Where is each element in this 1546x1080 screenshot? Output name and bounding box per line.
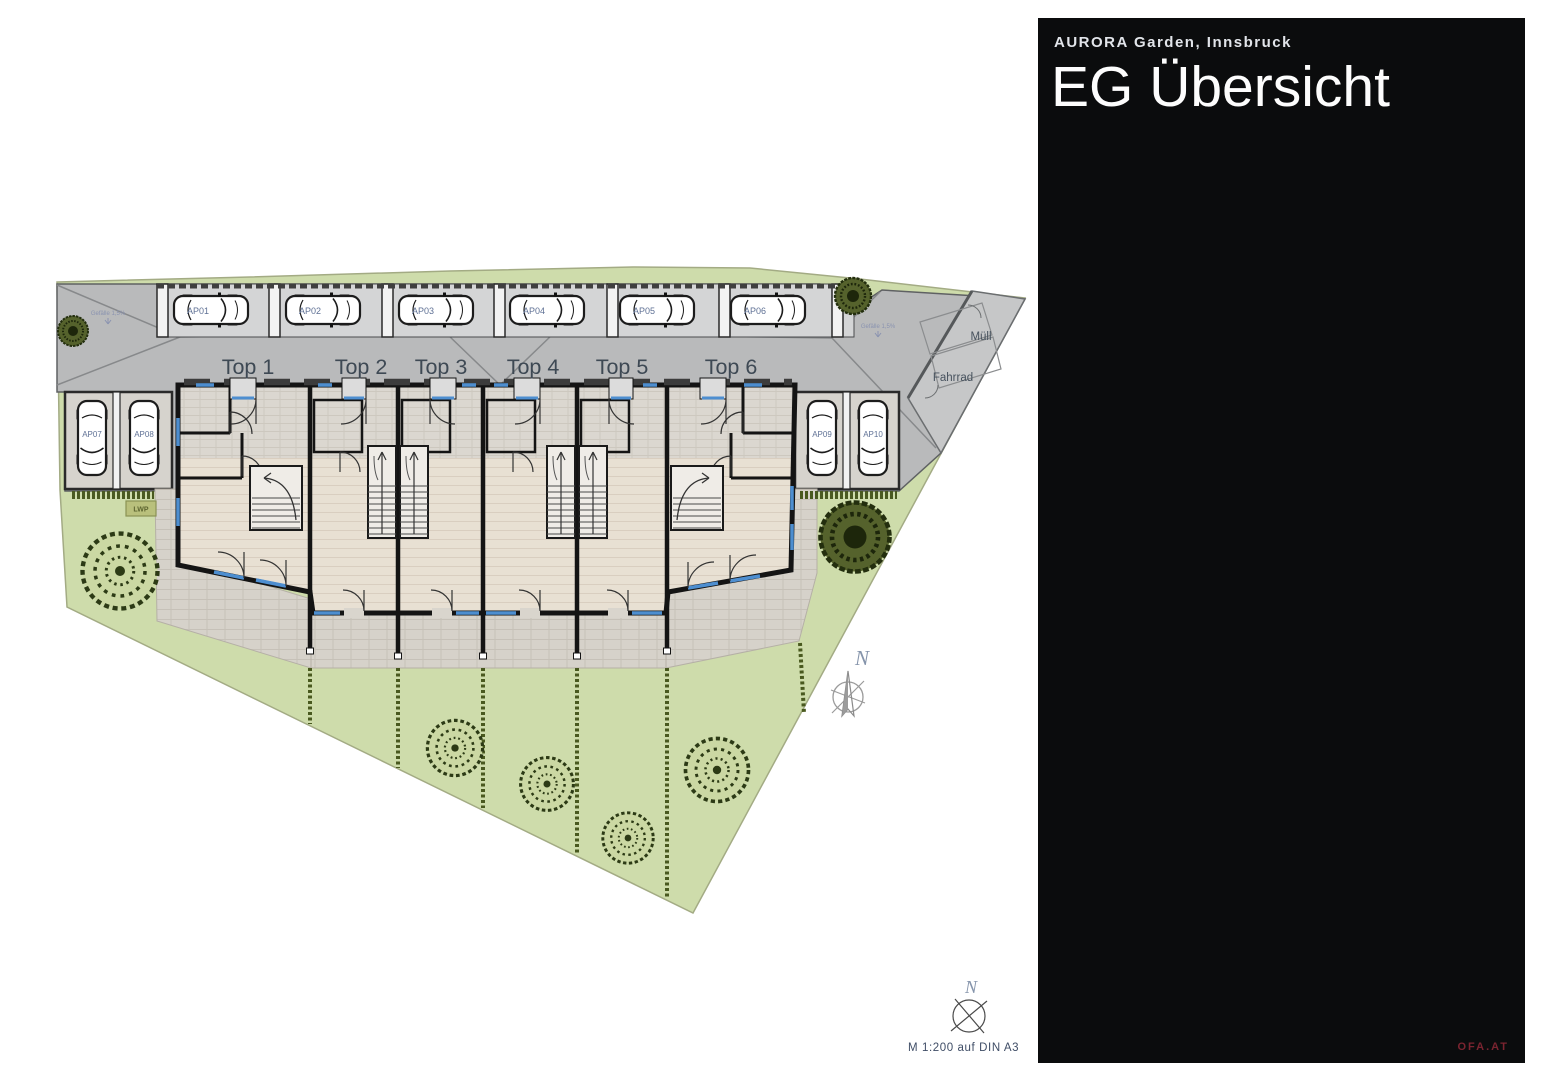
tree-garden-4 bbox=[686, 739, 749, 802]
title-panel: AURORA Garden, Innsbruck EG Übersicht OF… bbox=[1038, 18, 1525, 1063]
tree-garden-2 bbox=[521, 758, 574, 811]
parking-row-top: AP01 AP02 AP03 AP04 AP05 AP06 bbox=[157, 284, 854, 337]
site-plan-drawing: Müll Fahrrad AP01 AP02 AP03 AP04 AP05 AP… bbox=[0, 0, 1040, 1080]
unit4-stair bbox=[547, 446, 575, 538]
parking-label-ap06: AP06 bbox=[744, 306, 766, 316]
unit-label-top1: Top 1 bbox=[222, 355, 275, 379]
waste-room-label: Müll bbox=[970, 331, 991, 343]
car-ap02 bbox=[286, 293, 360, 328]
unit-label-top5: Top 5 bbox=[596, 355, 649, 379]
unit-label-top4: Top 4 bbox=[507, 355, 560, 379]
scale-note: M 1:200 auf DIN A3 bbox=[908, 1042, 1019, 1054]
bike-room-label: Fahrrad bbox=[933, 372, 973, 384]
parking-label-ap04: AP04 bbox=[523, 306, 545, 316]
north-arrow-sheet: N bbox=[951, 977, 987, 1033]
parking-label-ap07: AP07 bbox=[82, 430, 102, 439]
unit-label-top6: Top 6 bbox=[705, 355, 758, 379]
north-arrow-plan: N bbox=[831, 646, 870, 716]
parking-label-ap01: AP01 bbox=[187, 306, 209, 316]
heat-pump-box: LWP bbox=[126, 501, 156, 516]
car-ap04 bbox=[510, 293, 584, 328]
parking-label-ap03: AP03 bbox=[412, 306, 434, 316]
tree-garden-3 bbox=[603, 813, 653, 863]
north-label-plan: N bbox=[854, 646, 870, 670]
slope-note-right: Gefälle 1,5% bbox=[861, 324, 896, 330]
car-ap05 bbox=[620, 293, 694, 328]
parking-right: AP09 AP10 bbox=[795, 392, 899, 489]
tree-garden-right bbox=[821, 503, 890, 572]
car-ap06 bbox=[731, 293, 805, 328]
unit2-stair bbox=[368, 446, 396, 538]
parking-label-ap10: AP10 bbox=[863, 430, 883, 439]
parking-label-ap09: AP09 bbox=[812, 430, 832, 439]
brand-logo: OFA.AT bbox=[1457, 1041, 1509, 1053]
unit-label-top2: Top 2 bbox=[335, 355, 388, 379]
unit5-stair bbox=[579, 446, 607, 538]
north-label-sheet: N bbox=[964, 977, 978, 997]
unit-label-top3: Top 3 bbox=[415, 355, 468, 379]
car-ap01 bbox=[174, 293, 248, 328]
project-name: AURORA Garden, Innsbruck bbox=[1054, 34, 1292, 51]
parking-left: AP07 AP08 bbox=[65, 392, 172, 489]
slope-note-left: Gefälle 1,5% bbox=[91, 311, 126, 317]
tree-top-right bbox=[835, 278, 871, 314]
parking-label-ap08: AP08 bbox=[134, 430, 154, 439]
parking-label-ap02: AP02 bbox=[299, 306, 321, 316]
parking-label-ap05: AP05 bbox=[633, 306, 655, 316]
car-ap03 bbox=[399, 293, 473, 328]
page: Müll Fahrrad AP01 AP02 AP03 AP04 AP05 AP… bbox=[0, 0, 1546, 1080]
page-title: EG Übersicht bbox=[1051, 54, 1390, 120]
heat-pump-label: LWP bbox=[133, 507, 148, 514]
unit3-stair bbox=[400, 446, 428, 538]
tree-left-edge bbox=[58, 316, 88, 346]
tree-garden-left bbox=[83, 534, 158, 609]
tree-garden-1 bbox=[427, 720, 482, 775]
